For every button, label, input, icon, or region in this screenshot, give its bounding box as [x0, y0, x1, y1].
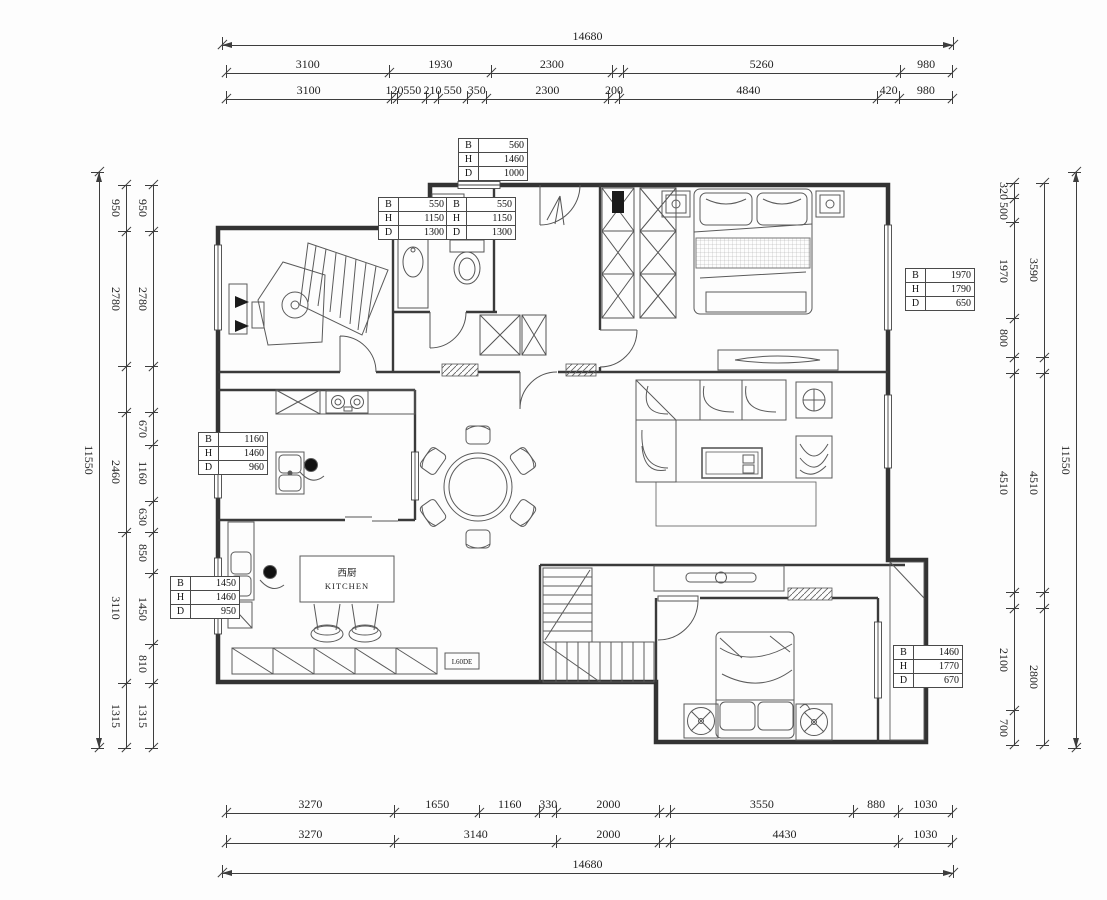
schedule-value: 650 [926, 297, 975, 311]
schedule-key: B [906, 269, 926, 283]
dim-label: 4840 [736, 84, 760, 96]
dim-label: 1315 [110, 704, 122, 728]
dim-arrow [222, 42, 232, 48]
dim-label: 2000 [596, 798, 620, 810]
dim-label: 2460 [110, 460, 122, 484]
schedule-key: D [447, 226, 467, 240]
dim-label: 2780 [137, 287, 149, 311]
schedule-value: 1150 [399, 212, 448, 226]
dim-line [1014, 183, 1015, 745]
schedule-key: D [199, 461, 219, 475]
dim-arrow [943, 42, 953, 48]
dim-label: 670 [137, 420, 149, 438]
dim-label: 550 [444, 84, 462, 96]
schedule-value: 1790 [926, 283, 975, 297]
dim-line [222, 873, 953, 874]
dim-label: 950 [110, 199, 122, 217]
schedule-key: D [171, 605, 191, 619]
dim-label: 4430 [773, 828, 797, 840]
schedule-key: H [171, 591, 191, 605]
dim-label: 980 [917, 84, 935, 96]
dim-label: 2800 [1028, 665, 1040, 689]
schedule-value: 560 [479, 139, 528, 153]
dim-label: 800 [998, 329, 1010, 347]
dim-line [226, 843, 952, 844]
dimension-layer: 1468031001930230052609803100120550210550… [0, 0, 1107, 900]
dim-label: 980 [917, 58, 935, 70]
window-schedule-table: B560H1460D1000 [458, 138, 528, 181]
dim-label: 500 [998, 202, 1010, 220]
schedule-value: 1150 [467, 212, 516, 226]
schedule-key: D [894, 674, 914, 688]
dim-line [1076, 172, 1077, 748]
schedule-value: 670 [914, 674, 963, 688]
schedule-key: B [379, 198, 399, 212]
dim-line [99, 172, 100, 748]
schedule-key: H [894, 660, 914, 674]
schedule-value: 1300 [467, 226, 516, 240]
window-schedule-table: B1160H1460D960 [198, 432, 268, 475]
window-schedule-table: B550H1150D1300 [378, 197, 448, 240]
dim-arrow [96, 172, 102, 182]
dim-label: 1650 [425, 798, 449, 810]
dim-label: 2100 [998, 648, 1010, 672]
dim-line [1044, 183, 1045, 745]
dim-label: 350 [468, 84, 486, 96]
dim-label: 700 [998, 719, 1010, 737]
dim-label: 1030 [913, 798, 937, 810]
dim-label: 1160 [137, 462, 149, 486]
schedule-key: D [379, 226, 399, 240]
dim-label: 850 [137, 544, 149, 562]
dim-label: 550 [403, 84, 421, 96]
dim-line [226, 813, 952, 814]
schedule-value: 1770 [914, 660, 963, 674]
dim-label: 200 [605, 84, 623, 96]
dim-label: 950 [137, 199, 149, 217]
schedule-key: B [894, 646, 914, 660]
schedule-key: B [199, 433, 219, 447]
floorplan-canvas: 西厨 KITCHEN L60DE 14680310019302300526098… [0, 0, 1107, 900]
dim-label: 3100 [297, 84, 321, 96]
dim-label: 4510 [1028, 471, 1040, 495]
dim-label: 3550 [750, 798, 774, 810]
dim-label: 810 [137, 655, 149, 673]
dim-label: 2000 [596, 828, 620, 840]
dim-label: 2300 [540, 58, 564, 70]
dim-label: 420 [880, 84, 898, 96]
schedule-key: H [459, 153, 479, 167]
dim-label: 5260 [750, 58, 774, 70]
dim-label: 1030 [913, 828, 937, 840]
dim-label: 11550 [1060, 445, 1072, 475]
schedule-value: 550 [399, 198, 448, 212]
schedule-value: 950 [191, 605, 240, 619]
schedule-value: 550 [467, 198, 516, 212]
dim-label: 630 [137, 508, 149, 526]
dim-label: 2780 [110, 287, 122, 311]
dim-label: 14680 [573, 858, 603, 870]
dim-label: 4510 [998, 471, 1010, 495]
schedule-key: B [459, 139, 479, 153]
dim-line [226, 73, 952, 74]
dim-label: 210 [424, 84, 442, 96]
schedule-value: 1970 [926, 269, 975, 283]
schedule-key: H [906, 283, 926, 297]
dim-arrow [96, 738, 102, 748]
dim-label: 3140 [464, 828, 488, 840]
window-schedule-table: B1450H1460D950 [170, 576, 240, 619]
dim-label: 1450 [137, 597, 149, 621]
schedule-key: H [379, 212, 399, 226]
schedule-key: H [447, 212, 467, 226]
schedule-key: B [447, 198, 467, 212]
dim-label: 1930 [428, 58, 452, 70]
dim-label: 1970 [998, 259, 1010, 283]
dim-label: 1315 [137, 704, 149, 728]
dim-label: 320 [998, 182, 1010, 200]
dim-line [126, 185, 127, 748]
dim-label: 330 [539, 798, 557, 810]
dim-label: 880 [867, 798, 885, 810]
schedule-key: D [459, 167, 479, 181]
dim-arrow [222, 870, 232, 876]
dim-label: 2300 [535, 84, 559, 96]
schedule-value: 1460 [191, 591, 240, 605]
schedule-value: 1300 [399, 226, 448, 240]
dim-label: 3270 [298, 798, 322, 810]
dim-label: 1160 [498, 798, 522, 810]
schedule-key: B [171, 577, 191, 591]
dim-label: 3100 [296, 58, 320, 70]
dim-label: 14680 [573, 30, 603, 42]
window-schedule-table: B550H1150D1300 [446, 197, 516, 240]
schedule-value: 1450 [191, 577, 240, 591]
schedule-value: 1460 [219, 447, 268, 461]
schedule-value: 1460 [479, 153, 528, 167]
dim-label: 11550 [83, 445, 95, 475]
schedule-key: D [906, 297, 926, 311]
dim-arrow [1073, 172, 1079, 182]
dim-label: 3110 [110, 596, 122, 620]
dim-arrow [1073, 738, 1079, 748]
dim-label: 3270 [298, 828, 322, 840]
dim-arrow [943, 870, 953, 876]
schedule-value: 960 [219, 461, 268, 475]
schedule-value: 1460 [914, 646, 963, 660]
dim-line [153, 185, 154, 748]
dim-line [222, 45, 953, 46]
schedule-key: H [199, 447, 219, 461]
window-schedule-table: B1970H1790D650 [905, 268, 975, 311]
dim-line [226, 99, 952, 100]
dim-label: 120 [385, 84, 403, 96]
schedule-value: 1000 [479, 167, 528, 181]
dim-label: 3590 [1028, 258, 1040, 282]
window-schedule-table: B1460H1770D670 [893, 645, 963, 688]
schedule-value: 1160 [219, 433, 268, 447]
